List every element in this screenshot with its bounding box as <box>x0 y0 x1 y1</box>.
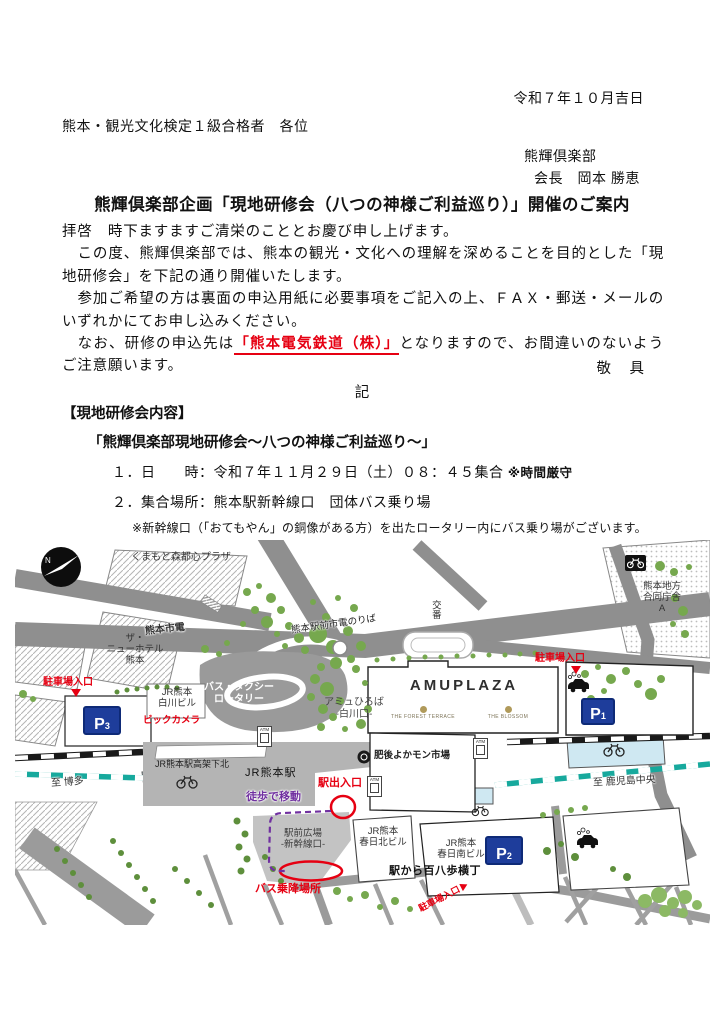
letter-title: 熊輝倶楽部企画「現地研修会（八つの神様ご利益巡り）」開催のご案内 <box>0 191 724 215</box>
blossom-logo: THE BLOSSOM <box>465 706 551 720</box>
map-label-to-hakata: 至 博多 <box>51 776 85 790</box>
entrance-arrow-icon <box>571 666 581 674</box>
item-meeting-place-label: ２．集合場所： <box>112 494 214 510</box>
map-label-koban: 交番 <box>429 600 440 619</box>
tram-stop-circle <box>333 641 347 655</box>
p3-number: 3 <box>105 720 110 733</box>
letter-date: 令和７年１０月吉日 <box>514 88 645 108</box>
paragraph-1: 拝啓 時下ますますご清栄のこととお慶び申し上げます。 <box>62 221 664 243</box>
map-label-bic-camera: ビックカメラ <box>143 716 200 727</box>
record-marker: 記 <box>0 381 724 402</box>
kasuga-kita-line2: 春日北ビル <box>353 838 413 849</box>
atm-icon: ATM <box>473 738 488 759</box>
entrance-arrow-icon <box>71 689 81 697</box>
forest-terrace-logo: THE FOREST TERRACE <box>375 706 471 720</box>
blossom-emblem-icon <box>505 706 512 713</box>
map-label-station: JR熊本駅 <box>245 767 296 780</box>
item-datetime: １．日 時：令和７年１１月２９日（土）０８：４５集合 ※時間厳守 <box>112 462 573 482</box>
p2-letter: P <box>496 847 507 863</box>
map-label-kokakita: JR熊本駅高架下北 <box>155 759 229 769</box>
closing-keigu: 敬 具 <box>597 357 647 378</box>
letter-body: 拝啓 時下ますますご清栄のこととお慶び申し上げます。 この度、熊輝倶楽部では、熊… <box>62 221 664 378</box>
map-label-walk: 徒歩で移動 <box>246 791 301 804</box>
map-label-amuplaza: AMUPLAZA <box>370 677 558 694</box>
forest-terrace-text: THE FOREST TERRACE <box>375 714 471 720</box>
p1-number: 1 <box>601 710 606 723</box>
map-label-yokamon: 肥後よかモン市場 <box>374 751 450 762</box>
paragraph-2: この度、熊輝倶楽部では、熊本の観光・文化への理解を深めることを目的とした「現地研… <box>62 243 664 288</box>
ekimae-line2: -新幹線口- <box>263 840 343 851</box>
letter-sender-person: 会長 岡本 勝恵 <box>534 168 640 188</box>
map-label-parking-entrance-right: 駐車場入口 <box>535 653 585 665</box>
atm-slot <box>476 745 485 755</box>
map-label-rotary: バス・タクシー ロータリー <box>193 682 285 705</box>
compass-icon: N <box>41 547 81 587</box>
kasuga-minami-line2: 春日南ビル <box>433 850 489 861</box>
map-label-yokocho: 駅から百八歩横丁 <box>389 865 481 878</box>
event-subtitle: 「熊輝倶楽部現地研修会～八つの神様ご利益巡り～」 <box>88 431 436 452</box>
atm-icon: ATM <box>257 726 272 747</box>
map-label-parking-entrance-left: 駐車場入口 <box>43 677 93 689</box>
station-area-map: N <box>15 540 710 925</box>
rotary-line2: ロータリー <box>193 694 285 706</box>
map-label-hotel: ザ・ ニューホテル 熊本 <box>93 634 177 667</box>
paragraph-3: 参加ご希望の方は裏面の申込用紙に必要事項をご記入の上、ＦＡＸ・郵送・メールのいず… <box>62 288 664 333</box>
map-label-kasuga-minami: JR熊本 春日南ビル <box>433 839 489 861</box>
paragraph-4: なお、研修の申込先は「熊本電気鉄道（株）」となりますので、お間違いのないようご注… <box>62 333 664 378</box>
bicycle-parking-icon <box>625 555 646 571</box>
atm-slot <box>370 783 379 793</box>
parking-sign-p2: P2 <box>485 836 523 865</box>
p1-letter: P <box>590 707 601 723</box>
item-datetime-note: ※時間厳守 <box>508 466 573 480</box>
blossom-text: THE BLOSSOM <box>465 714 551 720</box>
paragraph-4-prefix: なお、研修の申込先は <box>62 336 234 352</box>
item-datetime-label: １．日 時： <box>112 464 214 480</box>
map-label-station-exit: 駅出入口 <box>318 777 362 790</box>
atm-icon: ATM <box>367 776 382 797</box>
map-label-ekimae-plaza: 駅前広場 -新幹線口- <box>263 829 343 851</box>
meeting-place-note: ※新幹線口（「おてもやん」の銅像がある方）を出たロータリー内にバス乗り場がござい… <box>132 519 647 536</box>
forest-terrace-emblem-icon <box>420 706 427 713</box>
hotel-line3: 熊本 <box>93 656 177 667</box>
svg-text:N: N <box>45 556 51 565</box>
section-heading: 【現地研修会内容】 <box>62 402 193 423</box>
gov-line3: A <box>627 604 697 615</box>
letter-sender-org: 熊輝倶楽部 <box>524 146 597 166</box>
p2-number: 2 <box>507 850 512 863</box>
item-meeting-place-value: 熊本駅新幹線口 団体バス乗り場 <box>214 494 432 510</box>
atm-text: ATM <box>370 777 379 782</box>
item-datetime-value: 令和７年１１月２９日（土）０８：４５集合 <box>214 464 504 480</box>
map-label-gov-building: 熊本地方 合同庁舎 A <box>627 582 697 615</box>
document-page: 令和７年１０月吉日 熊本・観光文化検定１級合格者 各位 熊輝倶楽部 会長 岡本 … <box>0 0 724 1024</box>
application-destination-highlight: 「熊本電気鉄道（株）」 <box>234 336 399 355</box>
map-label-moritoshin-plaza: くまもと森都心プラザ <box>115 552 247 564</box>
atm-text: ATM <box>476 739 485 744</box>
letter-recipient: 熊本・観光文化検定１級合格者 各位 <box>62 116 309 136</box>
parking-sign-p1: P1 <box>581 698 615 725</box>
atm-slot <box>260 733 269 743</box>
atm-text: ATM <box>260 727 269 732</box>
rotary-line1: バス・タクシー <box>193 682 285 694</box>
parking-sign-p3: P3 <box>83 706 121 735</box>
item-meeting-place: ２．集合場所：熊本駅新幹線口 団体バス乗り場 <box>112 492 431 512</box>
p3-letter: P <box>94 717 105 733</box>
map-label-bus-stop: バス乗降場所 <box>255 883 321 896</box>
map-label-kasuga-kita: JR熊本 春日北ビル <box>353 827 413 849</box>
